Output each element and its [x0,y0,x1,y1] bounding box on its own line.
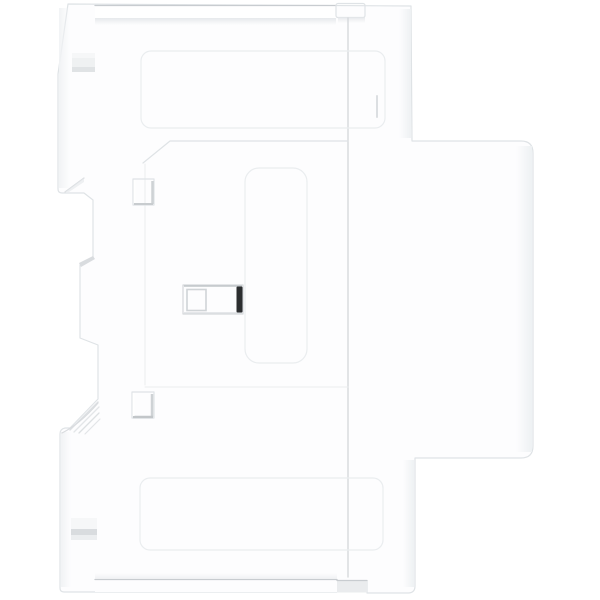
top-clip-tab-shadow [338,17,365,23]
top-groove-shadow [95,18,336,25]
top-fin-left-shade [59,8,70,188]
lower-block-right-shade [403,460,414,587]
top-groove-strip [95,6,336,18]
upper-vent-slot-shadow [72,67,95,72]
bottom-groove-shadow [95,573,337,579]
bottom-clip-notch [337,581,367,593]
upper-vent-slot [72,53,95,72]
bottom-fin-left-shade [61,432,71,587]
bottom-groove [95,573,337,592]
lower-vent-slot [71,518,97,540]
bulge-right-shade [516,146,532,452]
bottom-clip-notch-recess [337,581,367,593]
lower-vent-slot-lower [71,535,97,540]
bottom-groove-strip [95,580,337,592]
top-groove [95,6,336,26]
center-slot-dark-bar [237,287,243,313]
upper-vent-slot-highlight [72,53,95,58]
lower-vent-slot-band [71,529,97,535]
din-module-illustration [0,0,600,600]
upper-block-right-shade [399,9,411,138]
product-photo [0,0,600,600]
